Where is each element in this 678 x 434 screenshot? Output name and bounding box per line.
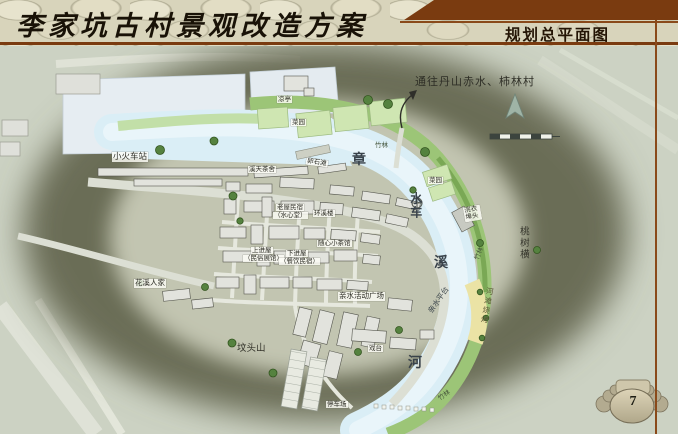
label-lower-house-line1: 下进屋 bbox=[286, 250, 308, 257]
header-underline bbox=[0, 42, 678, 45]
slide-title: 李家坑古村景观改造方案 bbox=[16, 4, 368, 43]
label-vegetable-garden-1: 菜园 bbox=[291, 119, 306, 126]
label-lower-house-line2: （餐饮民宿） bbox=[279, 258, 320, 265]
label-upper-house-line1: 上进屋 bbox=[251, 247, 273, 254]
label-huaxi-homes: 花溪人家 bbox=[134, 279, 166, 288]
label-washing-dock: 浣衣埠头 bbox=[463, 205, 482, 223]
river-char-1: 章 bbox=[352, 153, 366, 169]
scale-bar-icon bbox=[490, 134, 560, 139]
label-small-teahouse: 随心小茶馆 bbox=[317, 240, 352, 247]
label-huanxi-building: 环溪楼 bbox=[313, 210, 335, 217]
river-char-3: 溪 bbox=[434, 256, 448, 272]
page-number: 7 bbox=[620, 394, 646, 410]
label-old-house-line1: 老屋民宿 bbox=[276, 204, 304, 211]
label-upper-house-line2: （民俗展馆） bbox=[243, 255, 284, 262]
header-brown-band bbox=[404, 0, 678, 20]
slide: 李家坑古村景观改造方案 规划总平面图 通往丹山赤水、柿林村 章 水车 溪 河 小… bbox=[0, 0, 678, 434]
label-stage: 戏台 bbox=[368, 345, 383, 352]
label-bamboo-1: 竹林 bbox=[375, 142, 388, 149]
label-vegetable-garden-2: 菜园 bbox=[428, 177, 443, 184]
label-parking: 停车场 bbox=[326, 401, 348, 408]
label-old-house-line2: （水心堂） bbox=[273, 212, 308, 219]
direction-note: 通往丹山赤水、柿林村 bbox=[415, 76, 535, 89]
label-pavilion: 凉亭 bbox=[277, 96, 292, 103]
label-teahouse: 溪天茶舍 bbox=[248, 166, 276, 173]
header-bar: 李家坑古村景观改造方案 规划总平面图 bbox=[0, 0, 678, 46]
river-char-4: 河 bbox=[408, 356, 422, 372]
label-waterfront-plaza: 亲水活动广场 bbox=[338, 292, 385, 301]
river-char-2: 水车 bbox=[408, 192, 422, 220]
label-peach-grove: 桃树横 bbox=[517, 226, 528, 261]
label-grave-hill: 坟头山 bbox=[237, 344, 266, 355]
label-train-station: 小火车站 bbox=[112, 152, 148, 162]
master-plan-map bbox=[0, 0, 678, 434]
right-vertical-rule bbox=[655, 20, 657, 434]
